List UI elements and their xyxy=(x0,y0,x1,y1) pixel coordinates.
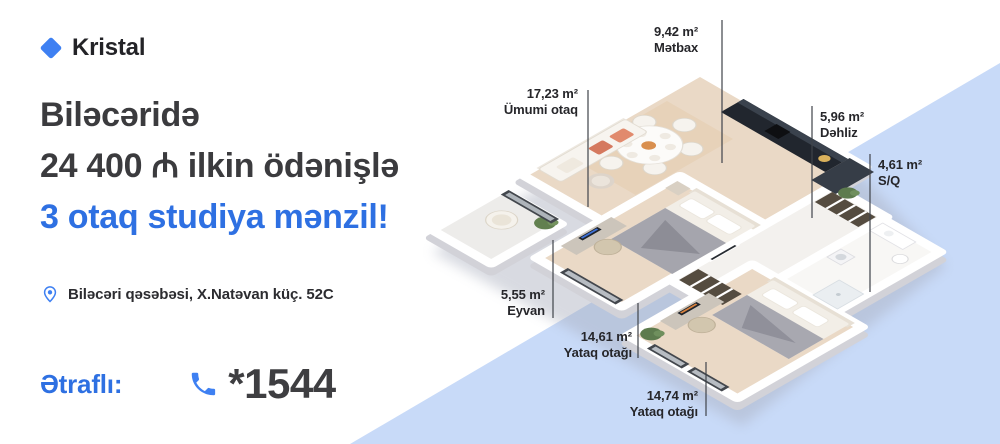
address-row: Biləcəri qəsəbəsi, X.Natəvan küç. 52C xyxy=(40,284,334,304)
room-label-dehliz: 5,96 m² Dəhliz xyxy=(820,109,900,141)
brand-name: Kristal xyxy=(72,34,145,62)
room-area: 14,74 m² xyxy=(647,388,698,403)
headline-line2: 24 400 ₼ ilkin ödənişlə xyxy=(40,141,399,192)
room-label-yataq-otagi-1: 14,61 m² Yataq otağı xyxy=(540,329,632,361)
room-area: 17,23 m² xyxy=(527,86,578,101)
room-label-sq: 4,61 m² S/Q xyxy=(878,157,948,189)
room-name: S/Q xyxy=(878,173,948,189)
headline-line3: 3 otaq studiya mənzil! xyxy=(40,192,399,243)
room-area: 9,42 m² xyxy=(654,24,698,39)
room-area: 5,55 m² xyxy=(501,287,545,302)
room-name: Ümumi otaq xyxy=(480,102,578,118)
brand-logo: Kristal xyxy=(40,34,145,62)
address-text: Biləcəri qəsəbəsi, X.Natəvan küç. 52C xyxy=(68,286,334,303)
room-area: 4,61 m² xyxy=(878,157,922,172)
room-name: Mətbax xyxy=(654,40,724,56)
headline: Biləcəridə 24 400 ₼ ilkin ödənişlə 3 ota… xyxy=(40,90,399,243)
room-name: Yataq otağı xyxy=(606,404,698,420)
diamond-icon xyxy=(40,37,63,60)
room-area: 14,61 m² xyxy=(581,329,632,344)
phone-number: *1544 xyxy=(228,360,335,408)
room-name: Dəhliz xyxy=(820,125,900,141)
room-name: Eyvan xyxy=(453,303,545,319)
room-label-umumi-otaq: 17,23 m² Ümumi otaq xyxy=(480,86,578,118)
promo-banner: 9,42 m² Mətbax 17,23 m² Ümumi otaq 5,96 … xyxy=(0,0,1000,444)
room-label-metbax: 9,42 m² Mətbax xyxy=(654,24,724,56)
room-label-eyvan: 5,55 m² Eyvan xyxy=(453,287,545,319)
headline-line1: Biləcəridə xyxy=(40,90,399,141)
room-name: Yataq otağı xyxy=(540,345,632,361)
room-area: 5,96 m² xyxy=(820,109,864,124)
contact-label: Ətraflı: xyxy=(40,369,122,400)
room-label-yataq-otagi-2: 14,74 m² Yataq otağı xyxy=(606,388,698,420)
phone-icon xyxy=(188,369,218,399)
contact-row: Ətraflı: *1544 xyxy=(40,360,336,408)
location-pin-icon xyxy=(40,284,60,304)
